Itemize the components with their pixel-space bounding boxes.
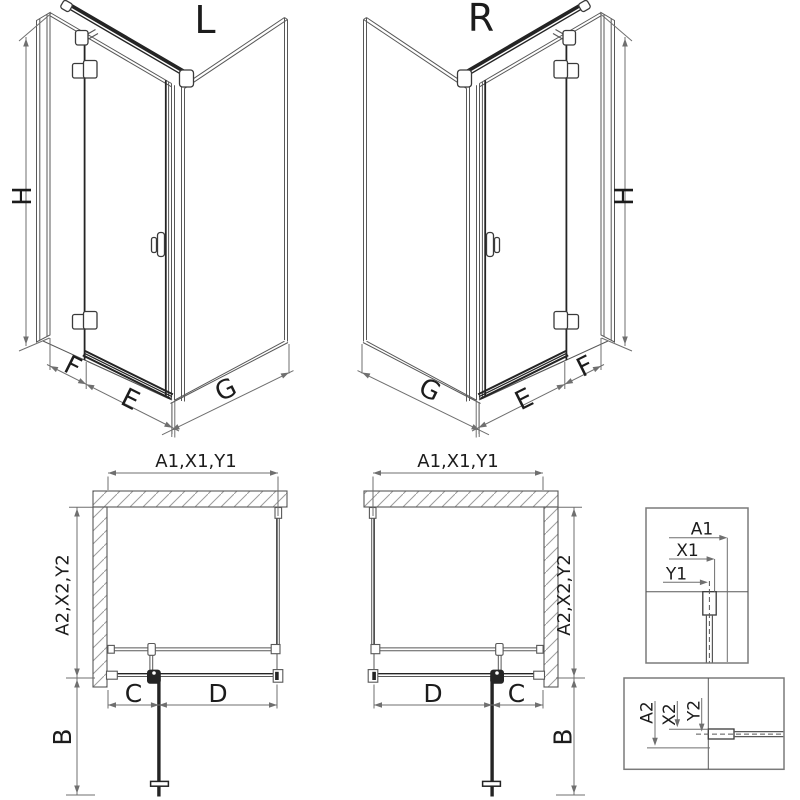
dim-label-h-left: H bbox=[8, 186, 38, 206]
detail-label-x2: X2 bbox=[660, 703, 680, 725]
plan-right-top-wall bbox=[364, 491, 558, 507]
plan-left-side-wall bbox=[93, 507, 107, 687]
dim-label-width-left: A1,X1,Y1 bbox=[155, 451, 236, 472]
detail-label-y2: Y2 bbox=[685, 700, 705, 722]
detail-depth-measure-points: A2 X2 Y2 bbox=[624, 678, 784, 769]
label-variant-right: R bbox=[468, 0, 494, 40]
plan-view-right: A1,X1,Y1 A2,X2,Y2 D C B bbox=[364, 451, 585, 797]
label-variant-left: L bbox=[194, 0, 215, 42]
drawing-canvas: L H F E G R H G E F A1,X1,Y1 A2,X2,Y2 C … bbox=[0, 0, 800, 800]
dim-label-depth-left: A2,X2,Y2 bbox=[53, 554, 74, 635]
iso-view-left: L H F E G bbox=[8, 0, 294, 438]
plan-view-left: A1,X1,Y1 A2,X2,Y2 C D B bbox=[48, 451, 287, 797]
dim-label-width-right: A1,X1,Y1 bbox=[417, 451, 498, 472]
plan-left-top-wall bbox=[93, 491, 287, 507]
detail-width-measure-points: A1 X1 Y1 bbox=[646, 508, 748, 663]
dim-label-g-left: G bbox=[210, 372, 241, 408]
iso-view-right: R H G E F bbox=[358, 0, 641, 438]
dim-label-h-right: H bbox=[610, 186, 640, 206]
dim-label-c-right: C bbox=[508, 679, 525, 708]
shower-enclosure-dimension-drawing: L H F E G R H G E F A1,X1,Y1 A2,X2,Y2 C … bbox=[0, 0, 800, 800]
dim-label-b-right: B bbox=[549, 728, 578, 745]
dim-label-d-left: D bbox=[208, 679, 227, 708]
dim-label-c-left: C bbox=[125, 679, 142, 708]
detail-label-x1: X1 bbox=[676, 541, 698, 561]
detail-width-wall-profile bbox=[703, 592, 716, 615]
dim-label-d-right: D bbox=[423, 679, 442, 708]
detail-label-a2: A2 bbox=[638, 701, 658, 723]
detail-label-a1: A1 bbox=[691, 520, 713, 540]
dim-label-b-left: B bbox=[48, 728, 77, 745]
dim-label-f-left: F bbox=[59, 350, 86, 384]
detail-label-y1: Y1 bbox=[665, 564, 687, 584]
dim-label-depth-right: A2,X2,Y2 bbox=[554, 554, 575, 635]
dim-label-g-right: G bbox=[414, 372, 445, 408]
